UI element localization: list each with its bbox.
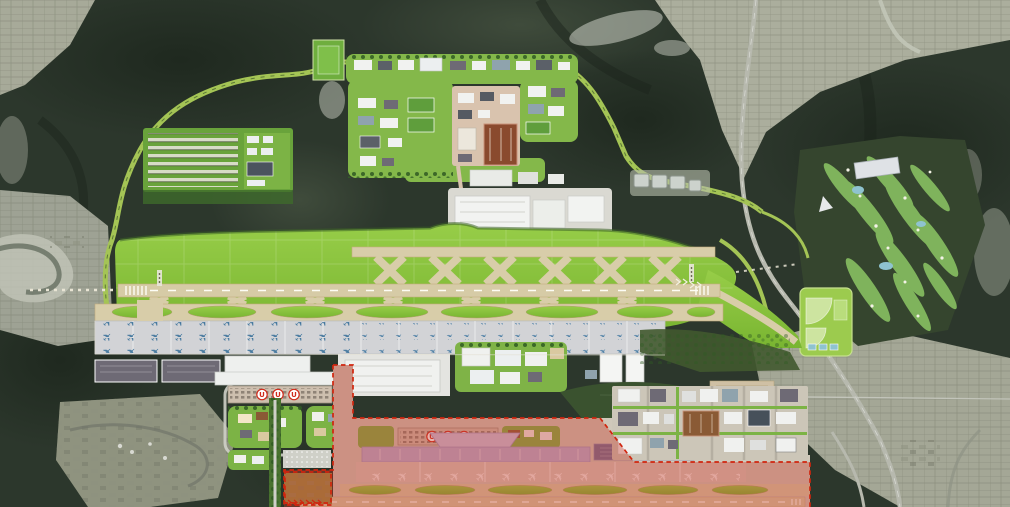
solar-substation: [244, 133, 290, 189]
masterplan-canvas: ✈ ✈ ✈: [0, 0, 1010, 507]
parking-logo-letter: U: [259, 391, 265, 399]
aircraft-stands-row-3: [355, 323, 660, 337]
village-plaza: [452, 86, 520, 166]
tennis-court: [484, 124, 517, 165]
maintenance-hangar: [338, 354, 450, 396]
support-village: [346, 54, 578, 196]
parking-logo-letter: U: [291, 391, 297, 399]
aircraft-stands-row-2: [100, 338, 350, 353]
campus-block-west: [228, 406, 302, 448]
parallel-taxiway-lenses: [95, 304, 723, 321]
park-pools: [808, 344, 838, 350]
sports-pitch-west: [313, 40, 344, 80]
retention-ponds: [630, 170, 710, 196]
gtc1-terminal-strip: [215, 372, 345, 385]
sports-park: [800, 288, 852, 356]
airport-masterplan-aerial-image: ✈ ✈ ✈: [0, 0, 1010, 507]
solar-farm: [143, 128, 293, 204]
runway-designation-west: [157, 270, 162, 286]
parking-logo: U: [289, 389, 299, 399]
east-industrial-park: [612, 386, 808, 460]
runway-designation-east: [689, 264, 694, 282]
aircraft-stands-row-1: [100, 322, 350, 337]
parking-logo: U: [257, 389, 267, 399]
industrial-sports-court: [683, 411, 719, 436]
farmland-bottom-left: [56, 394, 236, 507]
airport-support-cluster: [455, 342, 567, 392]
runway-holding-pad: [137, 300, 163, 321]
tree-lined-avenue: [269, 398, 281, 507]
